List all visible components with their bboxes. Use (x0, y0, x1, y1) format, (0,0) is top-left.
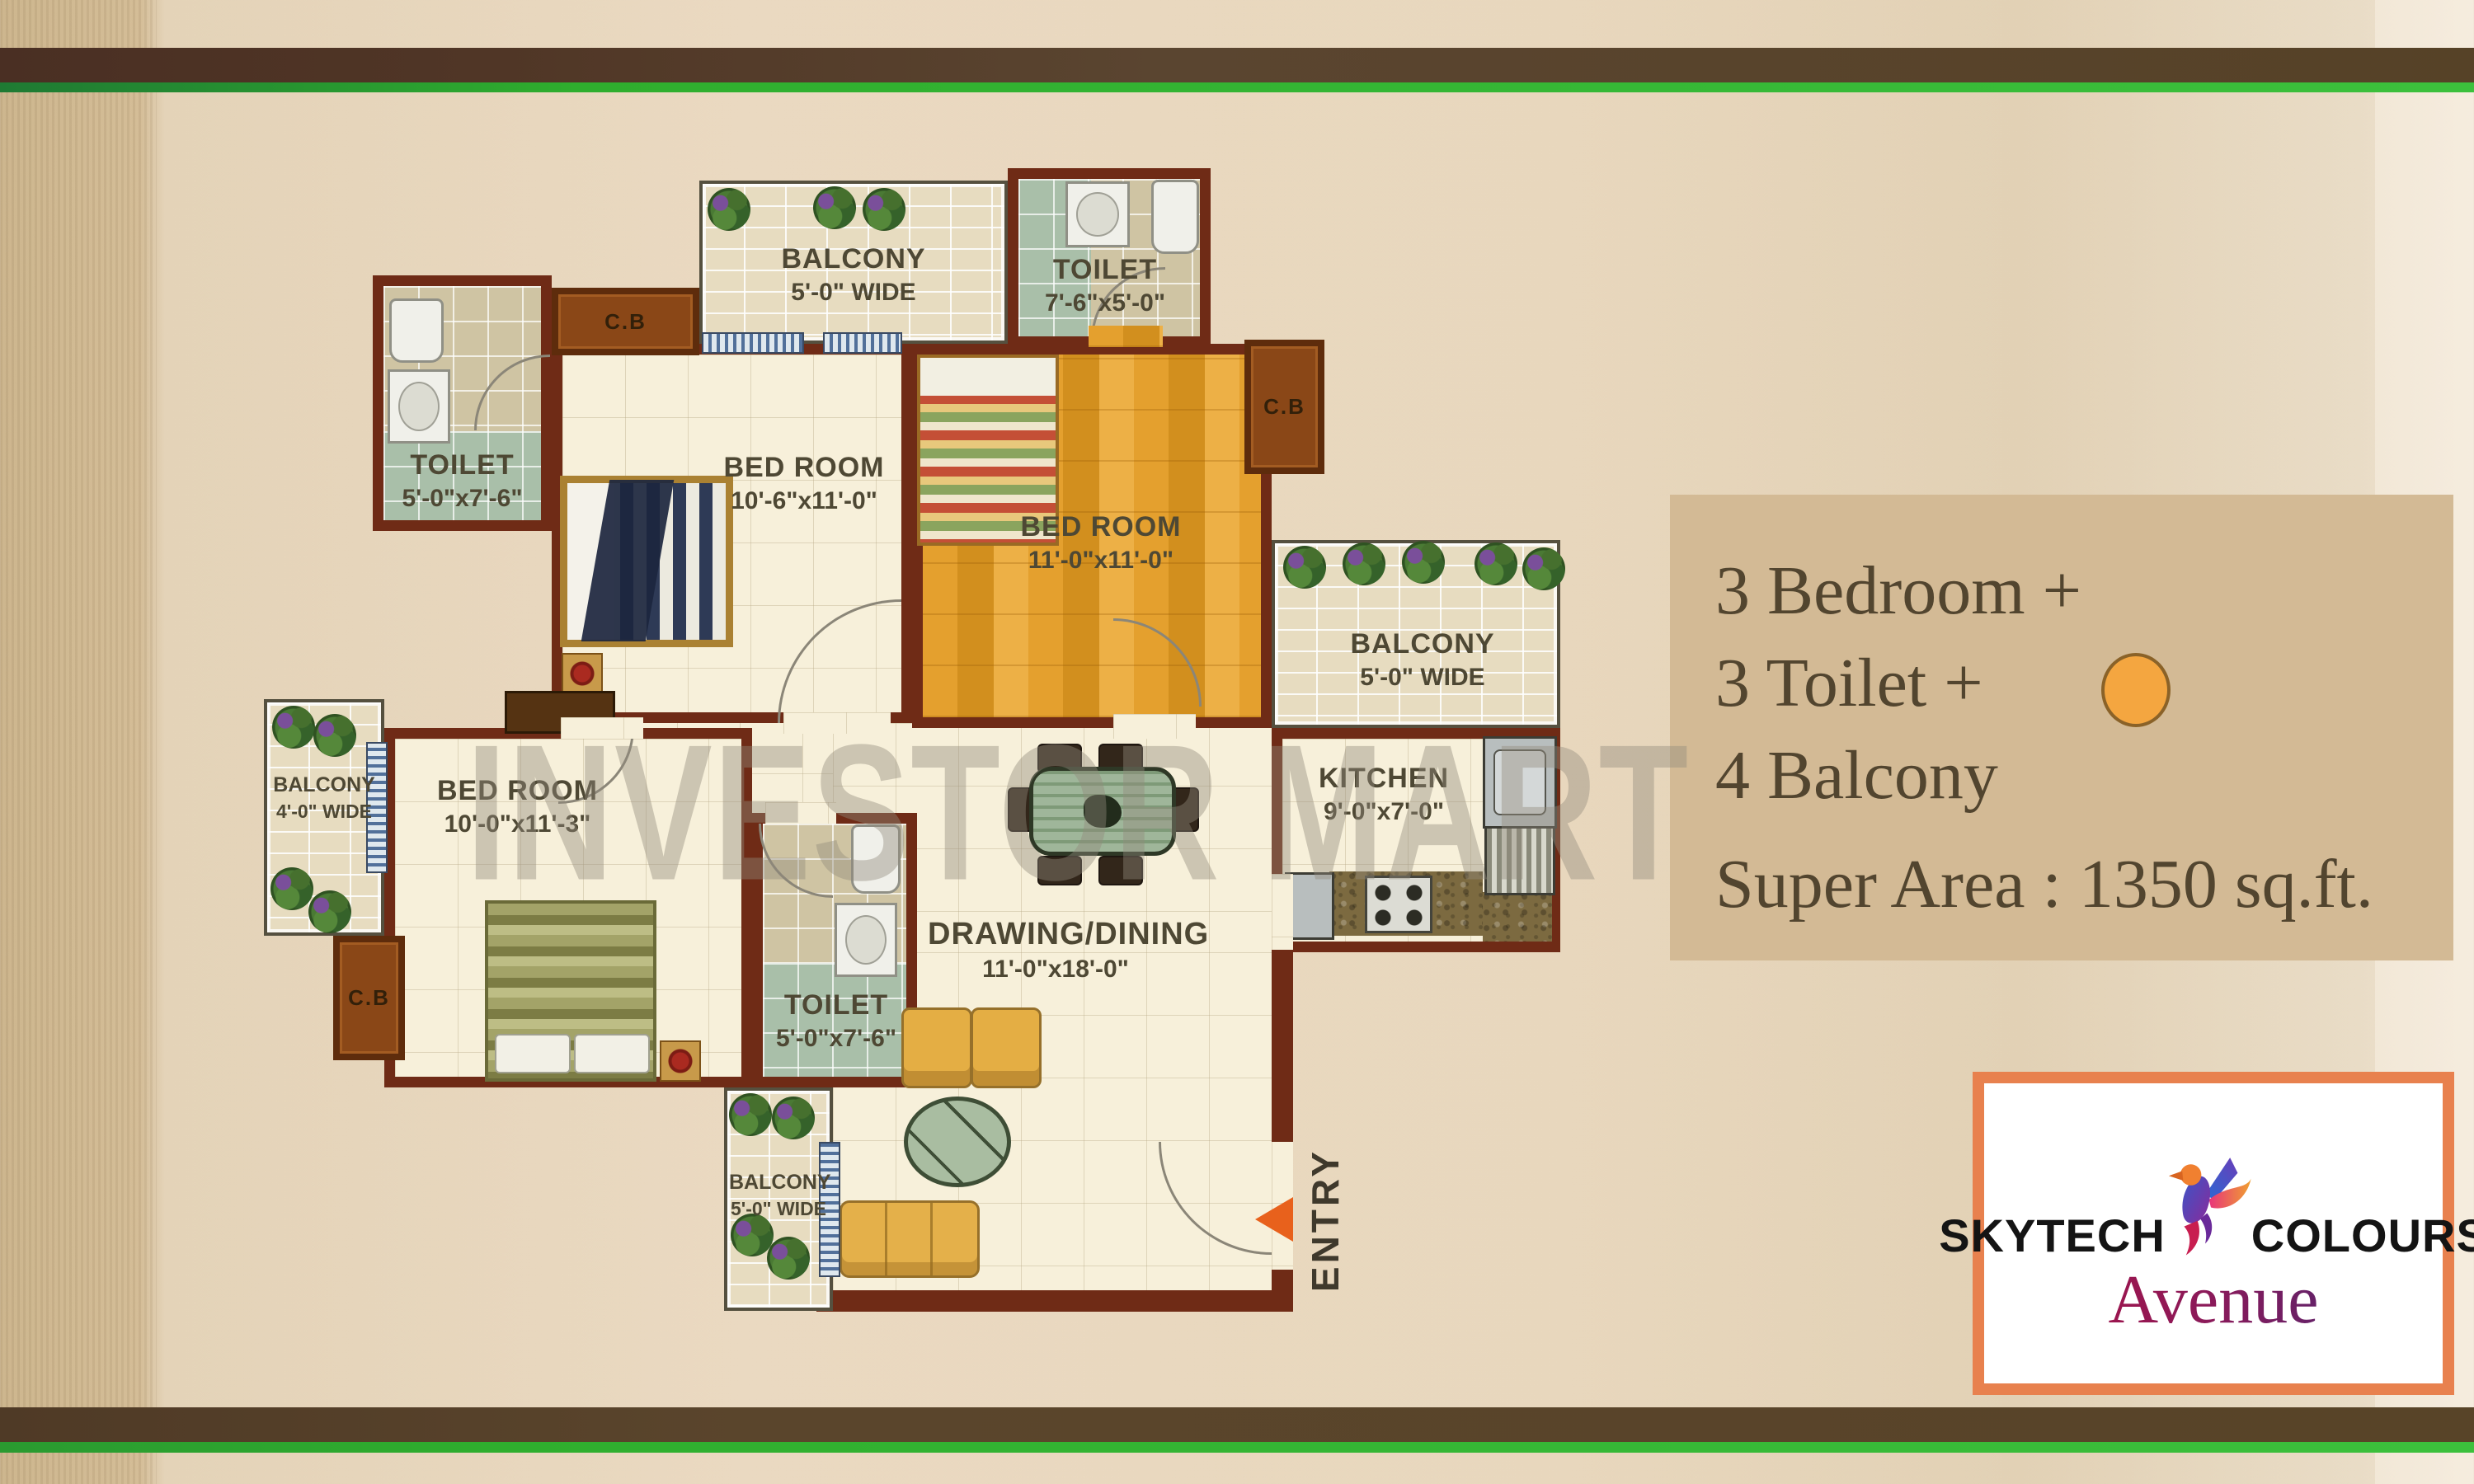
logo-sub-brand: Avenue (1979, 1260, 2448, 1340)
label-bedroom-top-left: BED ROOM 10'-6"x11'-0" (701, 452, 907, 515)
bottom-green-line (0, 1442, 2474, 1453)
pillow (574, 1034, 650, 1073)
entry-arrow-icon (1255, 1197, 1293, 1242)
entry-label: ENTRY (1303, 1129, 1349, 1311)
wall-right-upper (1272, 952, 1293, 1142)
plant (767, 1237, 810, 1280)
cupboard-top-label: C.B (604, 309, 647, 335)
highlight-circle (2101, 653, 2171, 727)
label-balcony-left: BALCONY 4'-0" WIDE (269, 773, 379, 823)
toilet-wc (389, 298, 444, 363)
label-balcony-right: BALCONY 5'-0" WIDE (1315, 628, 1530, 692)
door-gap (1089, 326, 1163, 347)
label-drawing-dining: DRAWING/DINING 11'-0"x18'-0" (928, 917, 1183, 984)
watermark: INVESTOR MART (466, 701, 1612, 924)
bottom-brown-band (0, 1407, 2474, 1442)
info-line-toilet: 3 Toilet + (1715, 643, 1983, 723)
toilet-sink (388, 369, 450, 444)
top-brown-band (0, 48, 2474, 82)
bed-double (485, 900, 656, 1082)
plant (863, 188, 905, 231)
wall-bottom (816, 1290, 1293, 1312)
armchair (901, 1007, 972, 1088)
info-line-balcony: 4 Balcony (1715, 735, 1998, 815)
window (702, 332, 804, 354)
plant (708, 188, 750, 231)
logo-brand-left: SKYTECH (1939, 1209, 2166, 1262)
top-green-line (0, 82, 2474, 92)
plant (772, 1097, 815, 1139)
left-texture-strip (0, 0, 157, 1484)
label-bedroom-top-right: BED ROOM 11'-0"x11'-0" (998, 511, 1204, 575)
bird-logo-icon (2157, 1151, 2253, 1258)
plant (1522, 547, 1565, 590)
plant (1402, 541, 1445, 584)
cupboard-right-label: C.B (1263, 394, 1305, 420)
label-balcony-bottom: BALCONY 5'-0" WIDE (729, 1171, 828, 1220)
plant (272, 706, 315, 749)
cupboard-bottom-left: C.B (333, 936, 405, 1060)
label-toilet-top: TOILET 7'-6"x5'-0" (1027, 254, 1183, 317)
cupboard-right: C.B (1244, 340, 1324, 474)
rug (904, 1097, 1011, 1187)
label-balcony-top: BALCONY 5'-0" WIDE (742, 243, 965, 307)
sofa (840, 1200, 980, 1278)
label-toilet-left: TOILET 5'-0"x7'-6" (386, 449, 539, 513)
toilet-wc (1151, 180, 1199, 254)
logo-brand-right: COLOURS (2251, 1209, 2474, 1262)
plant (1475, 542, 1517, 585)
pillow (495, 1034, 571, 1073)
info-line-bedroom: 3 Bedroom + (1715, 551, 2081, 631)
plant (729, 1093, 772, 1136)
plant (1343, 542, 1385, 585)
blanket (581, 480, 675, 641)
plant (813, 186, 856, 229)
toilet-sink (1065, 181, 1130, 247)
cupboard-bottom-label: C.B (348, 985, 390, 1011)
armchair (971, 1007, 1042, 1088)
side-table-flower (562, 653, 603, 694)
info-line-super-area: Super Area : 1350 sq.ft. (1715, 844, 2373, 924)
cupboard-top: C.B (552, 288, 699, 355)
plant (308, 890, 351, 933)
window (823, 332, 902, 354)
side-table-flower (660, 1040, 701, 1082)
label-toilet-bottom: TOILET 5'-0"x7'-6" (763, 989, 910, 1053)
plant (1283, 546, 1326, 589)
plant (313, 714, 356, 757)
plant (270, 867, 313, 910)
